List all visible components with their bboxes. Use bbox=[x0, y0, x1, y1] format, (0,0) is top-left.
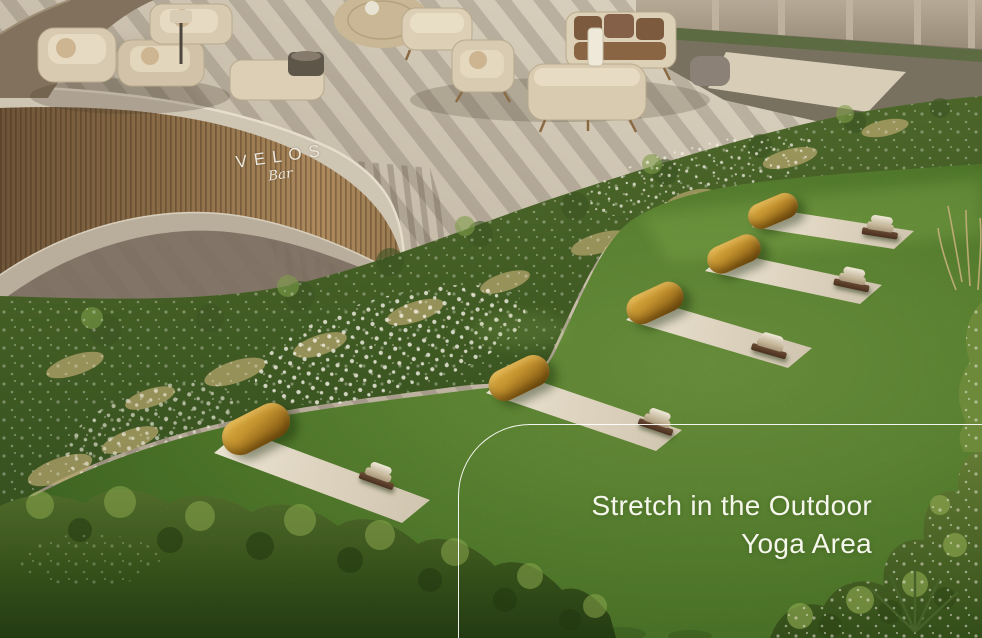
yoga-mat-1 bbox=[750, 204, 920, 252]
yoga-mat-4 bbox=[484, 368, 684, 455]
pouf bbox=[690, 56, 730, 86]
side-table bbox=[288, 51, 324, 76]
lounge-chair bbox=[150, 4, 232, 44]
lounge-chair bbox=[38, 28, 116, 82]
outdoor-yoga-area-render: VELOS Bar Stretch in the Outdoor Yoga Ar… bbox=[0, 0, 982, 638]
yoga-mat-3 bbox=[624, 296, 814, 370]
pillar-lamp bbox=[588, 28, 603, 66]
caption: Stretch in the Outdoor Yoga Area bbox=[591, 487, 872, 563]
lounge-chair bbox=[118, 40, 204, 86]
caption-line-2: Yoga Area bbox=[591, 525, 872, 563]
yoga-mat-5 bbox=[212, 426, 432, 527]
caption-line-1: Stretch in the Outdoor bbox=[591, 487, 872, 525]
